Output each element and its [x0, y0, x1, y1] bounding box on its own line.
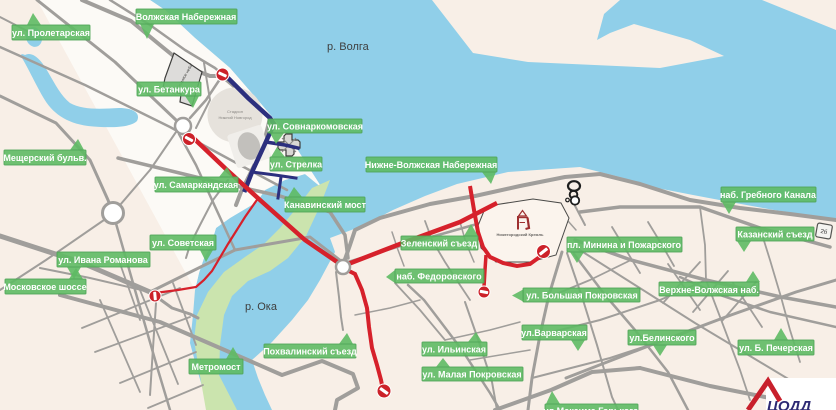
svg-text:Зеленский съезд: Зеленский съезд: [401, 239, 478, 249]
svg-text:ул.Белинского: ул.Белинского: [629, 333, 695, 343]
svg-text:р. Ока: р. Ока: [245, 301, 278, 313]
svg-text:наб. Федоровского: наб. Федоровского: [396, 272, 482, 282]
svg-text:Канавинский мост: Канавинский мост: [284, 200, 367, 210]
svg-text:р. Волга: р. Волга: [327, 41, 370, 53]
svg-text:ЦОДД: ЦОДД: [767, 398, 811, 410]
svg-text:ул. Ильинская: ул. Ильинская: [422, 345, 486, 355]
svg-text:ул. Большая Покровская: ул. Большая Покровская: [526, 291, 637, 301]
svg-text:ул. Пролетарская: ул. Пролетарская: [12, 28, 90, 38]
svg-text:ул.Максима Горького: ул.Максима Горького: [544, 406, 639, 410]
svg-text:пл. Минина и Пожарского: пл. Минина и Пожарского: [567, 240, 681, 250]
svg-text:наб. Гребного Канала: наб. Гребного Канала: [720, 190, 817, 200]
svg-text:ул. Стрелка: ул. Стрелка: [270, 160, 323, 170]
svg-text:ул. Б. Печерская: ул. Б. Печерская: [739, 343, 813, 353]
svg-text:ул. Ивана Романова: ул. Ивана Романова: [58, 255, 148, 265]
svg-text:Волжская Набережная: Волжская Набережная: [136, 12, 237, 22]
svg-text:ул. Советская: ул. Советская: [152, 238, 214, 248]
svg-text:Нижегородский Кремль: Нижегородский Кремль: [496, 232, 544, 237]
svg-text:Похвалинский съезд: Похвалинский съезд: [263, 347, 357, 357]
svg-text:ул. Самаркандская: ул. Самаркандская: [154, 180, 239, 190]
svg-text:Казанский съезд: Казанский съезд: [737, 230, 813, 240]
svg-text:ул.Варварская: ул.Варварская: [521, 328, 587, 338]
svg-text:Московское шоссе: Московское шоссе: [3, 282, 86, 292]
svg-text:ул. Бетанкура: ул. Бетанкура: [138, 85, 201, 95]
svg-text:Верхне-Волжская наб.: Верхне-Волжская наб.: [659, 285, 759, 295]
svg-text:ул. Малая Покровская: ул. Малая Покровская: [422, 370, 521, 380]
svg-text:Метромост: Метромост: [192, 362, 242, 372]
svg-text:Мещерский бульв.: Мещерский бульв.: [3, 153, 86, 163]
svg-text:Нижний Новгород: Нижний Новгород: [218, 115, 252, 120]
svg-text:Нижне-Волжская Набережная: Нижне-Волжская Набережная: [365, 160, 497, 170]
svg-text:ул. Совнаркомовская: ул. Совнаркомовская: [267, 122, 363, 132]
svg-text:Стадион: Стадион: [227, 109, 243, 114]
